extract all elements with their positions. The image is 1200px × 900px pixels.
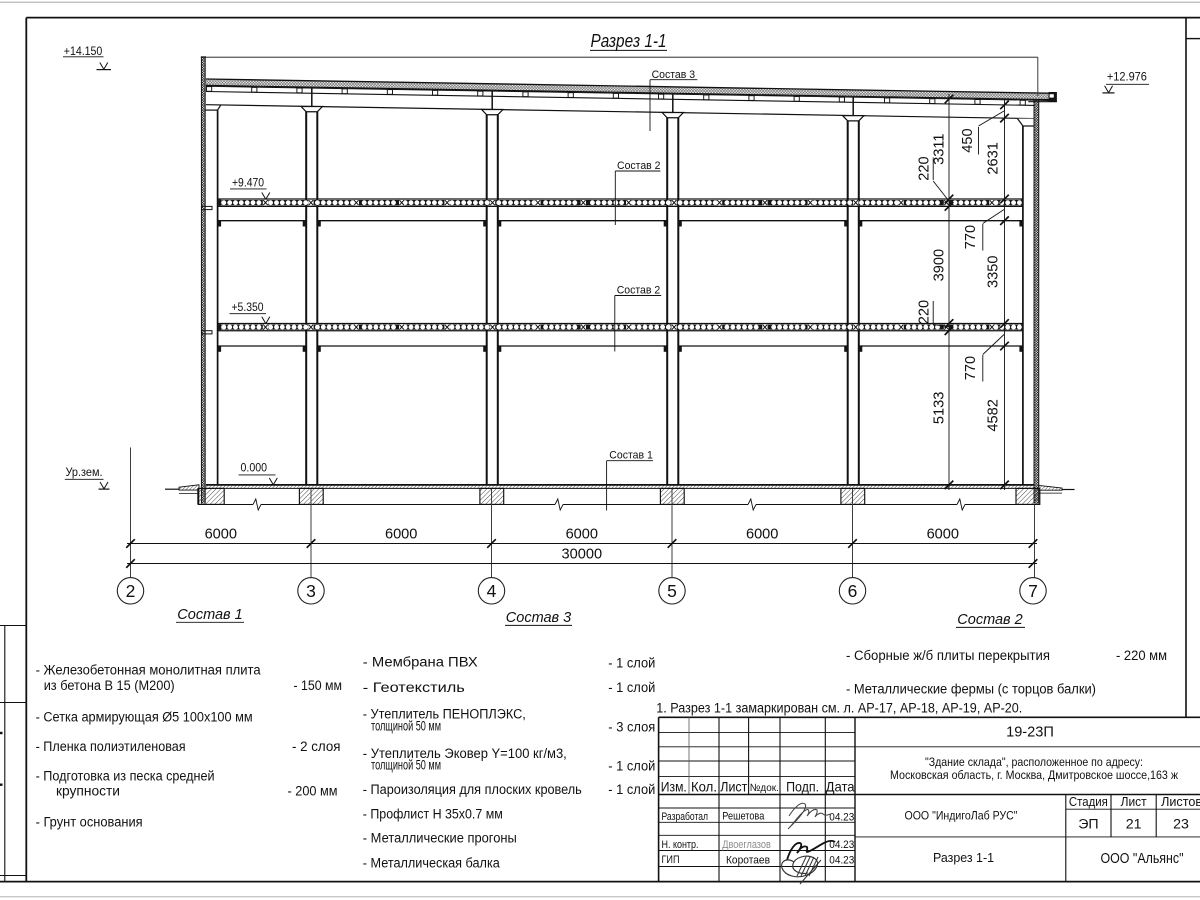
svg-text:- 1 слой: - 1 слой (608, 680, 655, 695)
svg-text:Кол.: Кол. (691, 779, 717, 794)
svg-text:+9.470: +9.470 (232, 175, 264, 189)
svg-text:- Металлическая балка: - Металлическая балка (363, 855, 501, 870)
svg-text:- 200 мм: - 200 мм (288, 784, 338, 799)
svg-text:5: 5 (667, 581, 677, 601)
svg-text:Состав 2: Состав 2 (617, 160, 661, 172)
svg-text:220: 220 (917, 300, 933, 324)
svg-text:3900: 3900 (932, 249, 948, 281)
svg-text:5133: 5133 (932, 392, 948, 424)
svg-text:04.23: 04.23 (829, 854, 854, 866)
svg-text:6000: 6000 (385, 527, 417, 543)
svg-text:Московская область, г. Москва,: Московская область, г. Москва, Дмитровск… (890, 768, 1179, 782)
svg-text:Разработал: Разработал (662, 811, 709, 823)
svg-text:3311: 3311 (932, 134, 948, 165)
svg-text:+14.150: +14.150 (64, 44, 103, 58)
svg-text:Листов: Листов (1161, 794, 1200, 809)
svg-text:770: 770 (963, 356, 979, 380)
svg-text:- Металлические фермы (с торцо: - Металлические фермы (с торцов балки) (846, 682, 1096, 697)
svg-text:3: 3 (306, 581, 316, 601)
svg-text:450: 450 (960, 128, 976, 152)
svg-text:толщиной 50 мм: толщиной 50 мм (371, 758, 441, 773)
svg-text:- Пленка полиэтиленовая: - Пленка полиэтиленовая (36, 739, 186, 754)
svg-text:21: 21 (1126, 817, 1142, 833)
svg-text:Лист: Лист (720, 779, 748, 794)
svg-text:Н. контр.: Н. контр. (662, 839, 699, 851)
svg-text:Ур.зем.: Ур.зем. (66, 465, 103, 479)
svg-text:Состав 2: Состав 2 (617, 285, 661, 297)
svg-text:- 150 мм: - 150 мм (294, 678, 343, 693)
svg-text:0.000: 0.000 (241, 461, 268, 475)
svg-text:19-23П: 19-23П (1006, 725, 1054, 741)
svg-text:Подп.: Подп. (786, 779, 819, 794)
svg-text:4582: 4582 (986, 399, 1002, 431)
svg-text:- Металлические прогоны: - Металлические прогоны (363, 831, 517, 846)
svg-text:Состав 3: Состав 3 (506, 610, 571, 626)
svg-text:№док.: №док. (750, 782, 779, 794)
svg-text:+5.350: +5.350 (232, 300, 264, 314)
svg-text:1. Разрез 1-1 замаркирован см.: 1. Разрез 1-1 замаркирован см. л. АР-17,… (656, 700, 1022, 715)
svg-text:толщиной 50 мм: толщиной 50 мм (371, 719, 441, 734)
svg-text:ГИП: ГИП (662, 854, 680, 866)
svg-text:- Сетка армирующая Ø5 100х100: - Сетка армирующая Ø5 100х100 мм (36, 710, 253, 725)
svg-text:Разрез 1-1: Разрез 1-1 (933, 850, 994, 865)
svg-text:- 2 слоя: - 2 слоя (292, 739, 341, 754)
svg-text:- Грунт основания: - Грунт основания (36, 815, 143, 830)
svg-text:- Пароизоляция для плоских кро: - Пароизоляция для плоских кровель (363, 782, 582, 797)
svg-text:из бетона В 15 (М200): из бетона В 15 (М200) (44, 678, 175, 693)
svg-text:- 1 слой: - 1 слой (608, 759, 655, 774)
svg-text:+12.976: +12.976 (1107, 69, 1147, 83)
svg-text:- Профлист Н 35х0.7 мм: - Профлист Н 35х0.7 мм (363, 807, 503, 822)
svg-text:30000: 30000 (562, 547, 603, 563)
svg-text:6: 6 (848, 581, 858, 601)
svg-text:2: 2 (126, 581, 136, 601)
svg-text:- Геотекстиль: - Геотекстиль (363, 680, 465, 695)
svg-text:- 220 мм: - 220 мм (1116, 648, 1167, 663)
svg-text:- 1 слой: - 1 слой (608, 782, 655, 797)
svg-text:- 3 слоя: - 3 слоя (608, 720, 655, 735)
svg-text:ООО "ИндигоЛаб РУС": ООО "ИндигоЛаб РУС" (905, 809, 1018, 823)
svg-text:- Железобетонная монолитная п: - Железобетонная монолитная плита (36, 663, 262, 678)
svg-text:Дата: Дата (826, 779, 855, 794)
svg-text:2631: 2631 (986, 142, 1002, 174)
svg-text:6000: 6000 (566, 527, 598, 543)
svg-text:7: 7 (1028, 581, 1038, 601)
svg-text:Решетова: Решетова (722, 811, 765, 823)
svg-text:ЭП: ЭП (1078, 817, 1098, 833)
svg-text:- 1 слой: - 1 слой (608, 656, 655, 671)
svg-text:6000: 6000 (927, 527, 959, 543)
svg-text:Коротаев: Коротаев (726, 854, 770, 866)
svg-text:Лист: Лист (1121, 794, 1147, 809)
svg-text:4: 4 (487, 581, 497, 601)
svg-text:- Сборные ж/б плиты перекрытия: - Сборные ж/б плиты перекрытия (846, 648, 1050, 663)
svg-text:"Здание склада", расположенное: "Здание склада", расположенное по адресу… (925, 755, 1143, 769)
svg-text:Состав 3: Состав 3 (652, 69, 696, 81)
svg-text:04.23: 04.23 (829, 811, 854, 823)
svg-text:ООО "Альянс": ООО "Альянс" (1101, 851, 1184, 867)
svg-text:- Подготовка из песка средней: - Подготовка из песка средней (36, 769, 215, 784)
svg-text:Состав 1: Состав 1 (609, 450, 653, 462)
svg-text:220: 220 (917, 156, 933, 180)
svg-text:Изм.: Изм. (661, 779, 687, 794)
svg-text:крупности: крупности (56, 784, 120, 799)
svg-text:770: 770 (963, 225, 979, 249)
svg-text:Двоеглазов: Двоеглазов (722, 839, 771, 851)
svg-text:6000: 6000 (746, 527, 778, 543)
svg-text:- Мембрана ПВХ: - Мембрана ПВХ (363, 655, 478, 670)
svg-text:Разрез 1-1: Разрез 1-1 (591, 30, 667, 51)
svg-text:Состав 1: Состав 1 (177, 607, 242, 623)
svg-text:Стадия: Стадия (1069, 794, 1108, 809)
svg-text:3350: 3350 (986, 256, 1002, 288)
svg-text:6000: 6000 (205, 527, 237, 543)
svg-text:Состав 2: Состав 2 (957, 612, 1022, 628)
svg-text:23: 23 (1173, 817, 1189, 833)
